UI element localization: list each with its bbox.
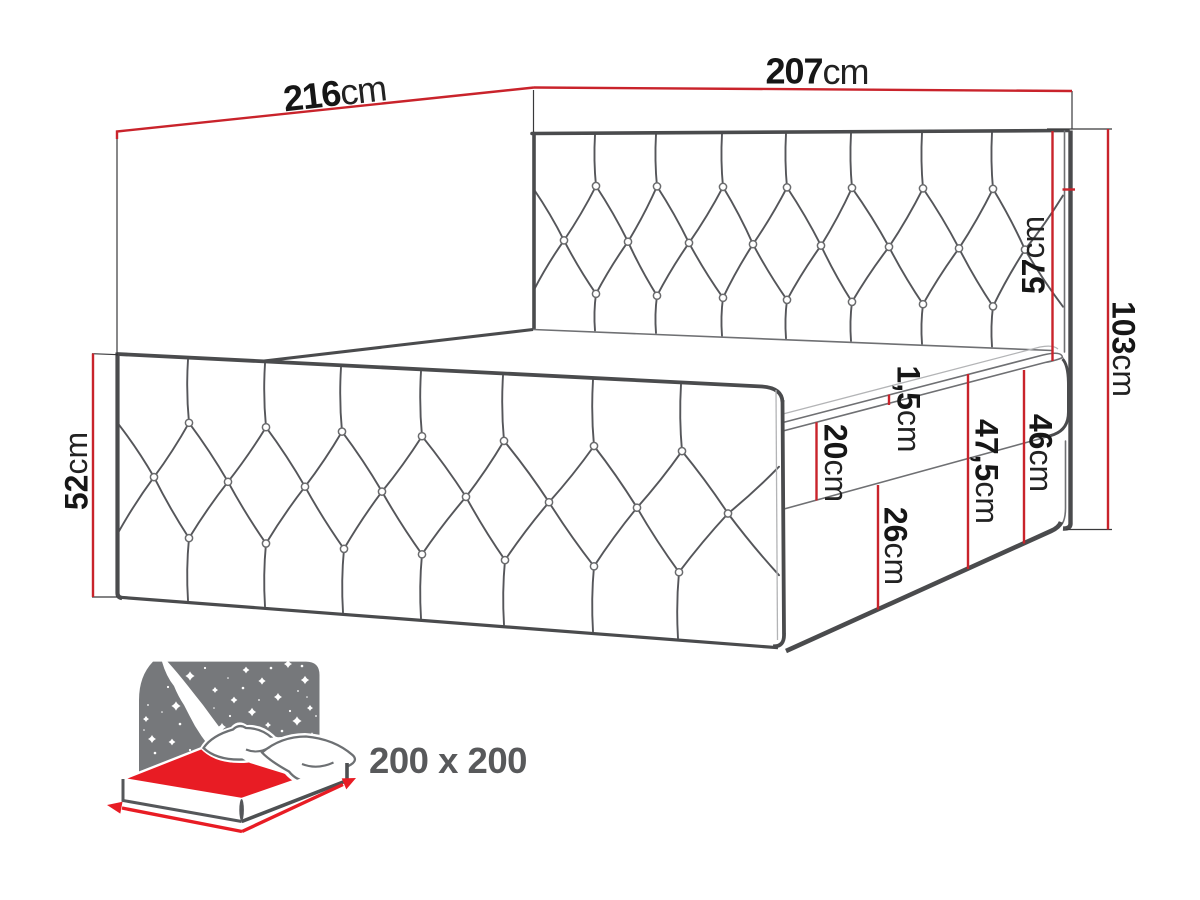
svg-text:26cm: 26cm xyxy=(878,507,914,585)
svg-text:52cm: 52cm xyxy=(58,432,94,510)
svg-text:46cm: 46cm xyxy=(1023,414,1059,492)
svg-text:47,5cm: 47,5cm xyxy=(969,419,1005,524)
svg-text:200 x 200: 200 x 200 xyxy=(369,740,527,781)
svg-text:1,5cm: 1,5cm xyxy=(891,365,927,452)
svg-text:207cm: 207cm xyxy=(765,51,868,92)
svg-text:20cm: 20cm xyxy=(818,424,854,502)
svg-text:57cm: 57cm xyxy=(1015,216,1051,294)
svg-text:103cm: 103cm xyxy=(1106,301,1142,397)
